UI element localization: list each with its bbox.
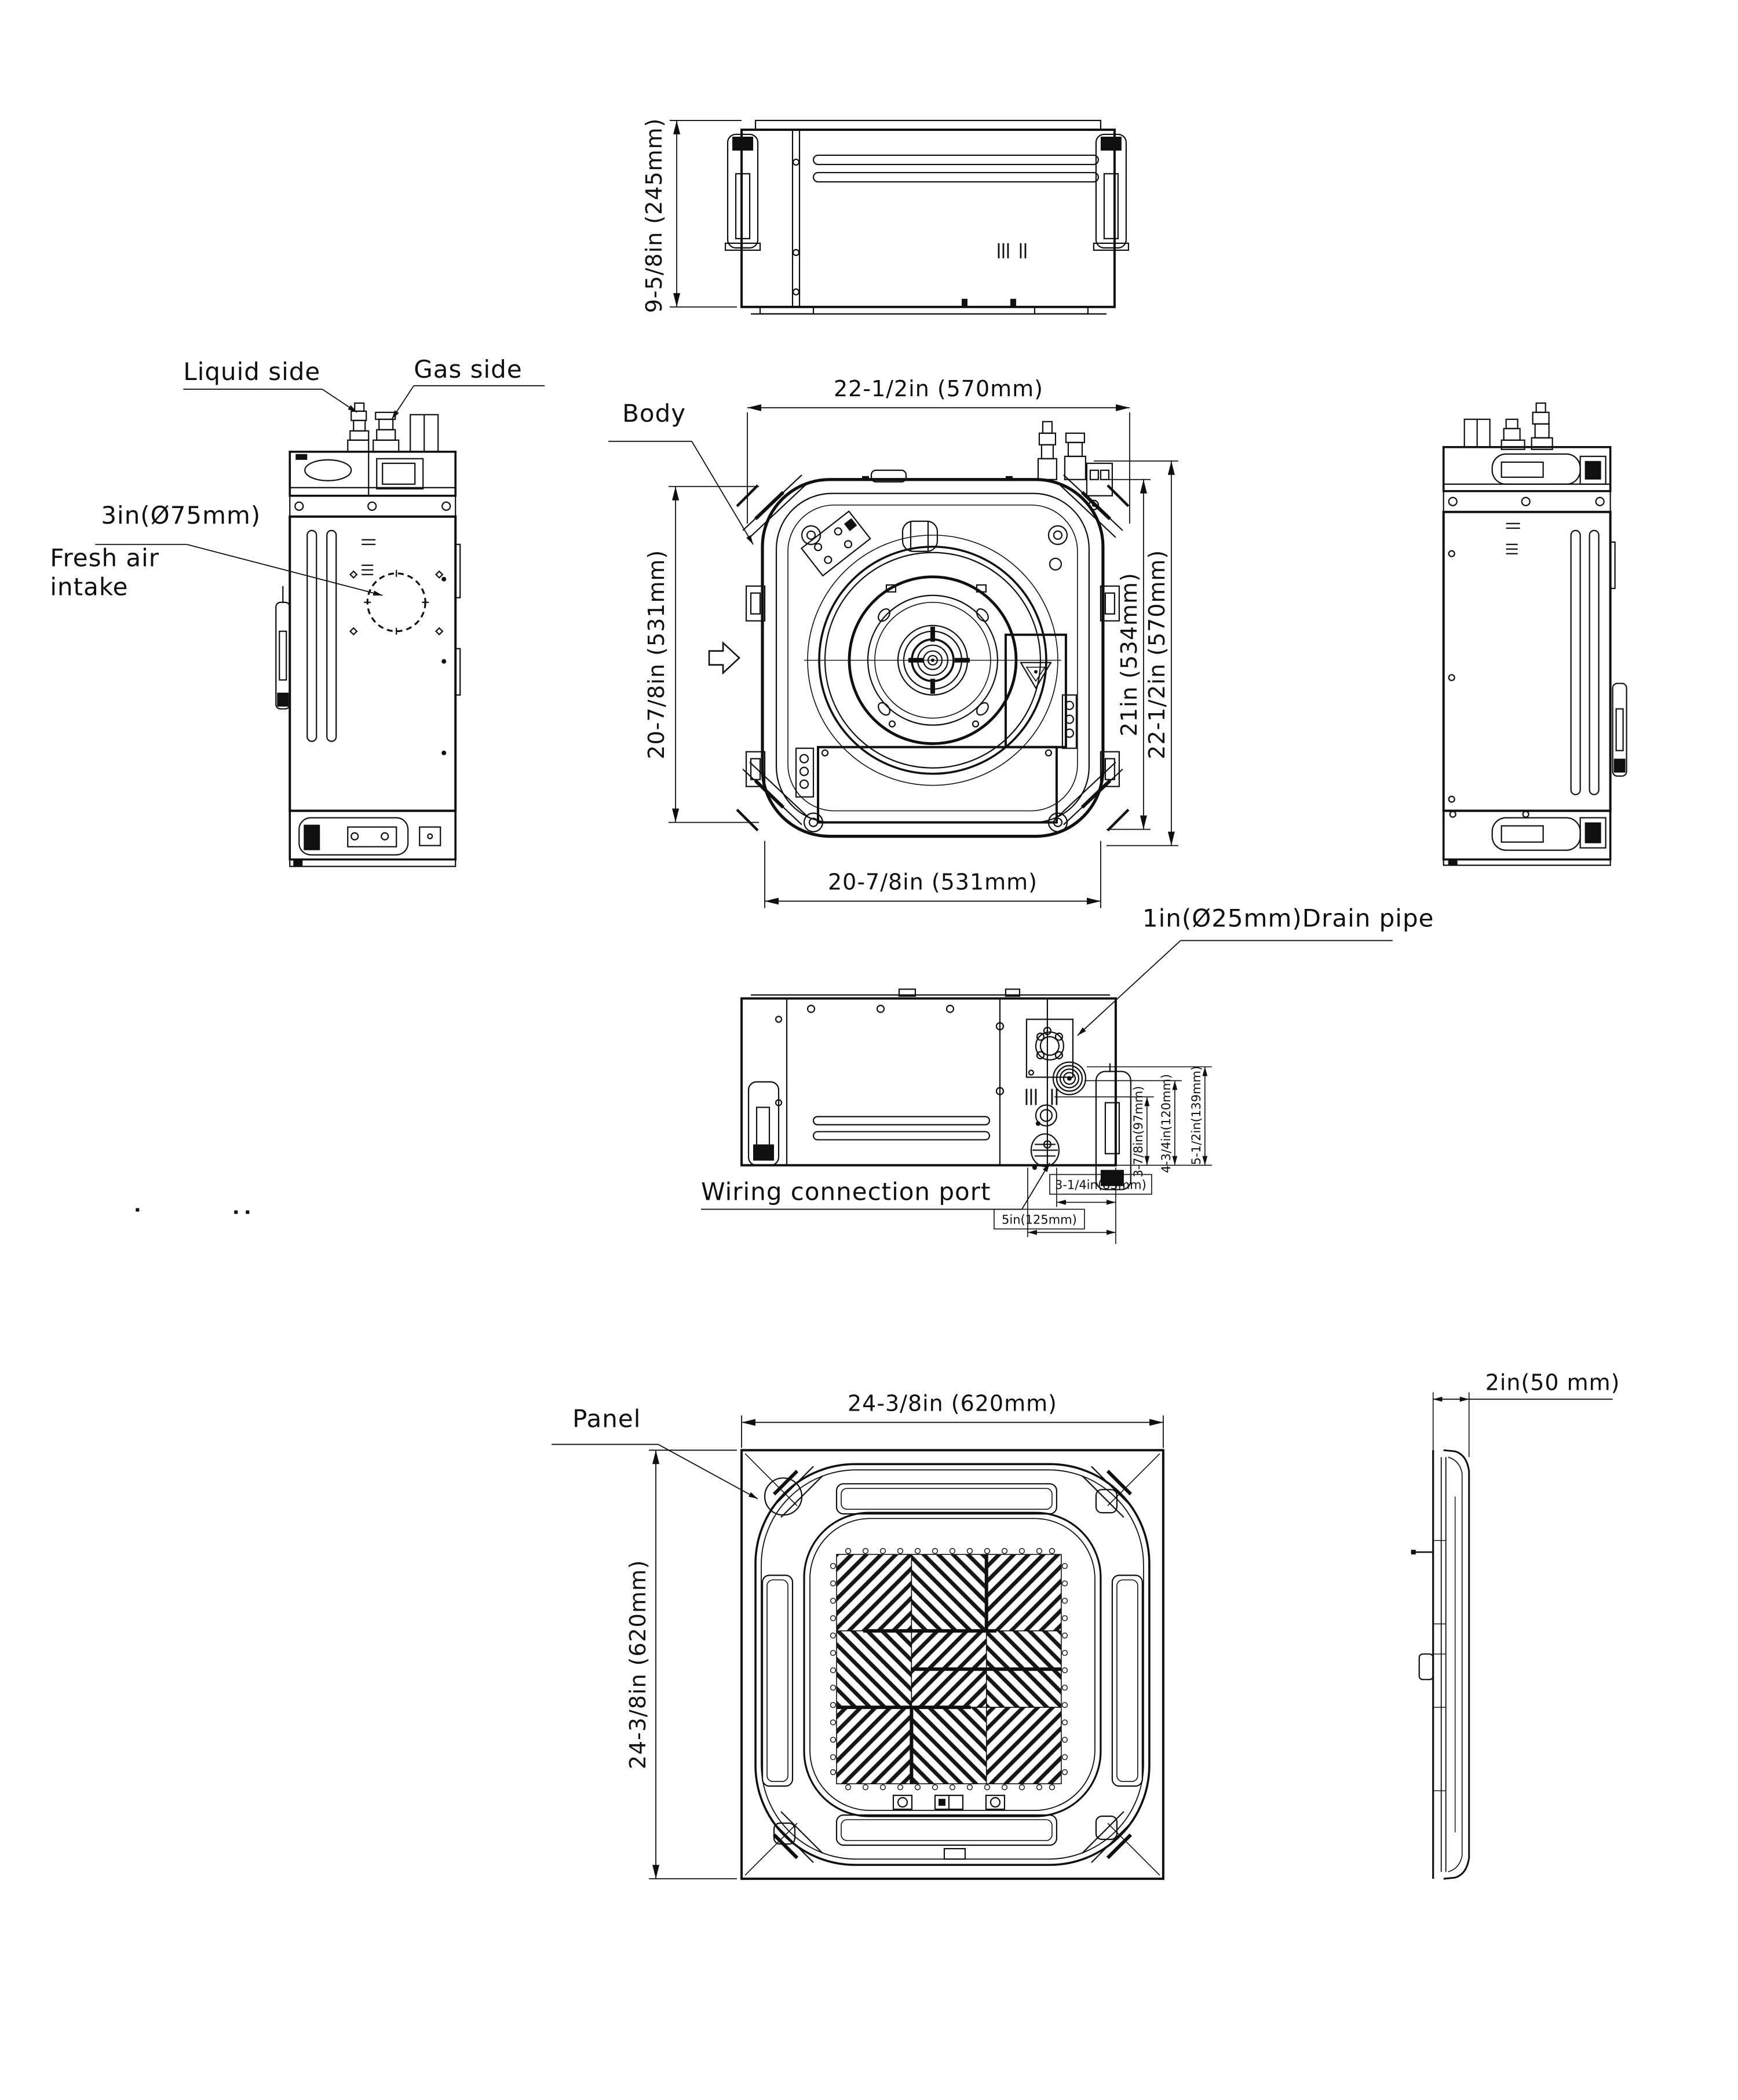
- dim-left-620: 24-3/8in (620mm): [625, 1560, 651, 1769]
- grommet-hole: [1036, 1105, 1057, 1126]
- dim-125mm: 5in(125mm): [1002, 1212, 1077, 1226]
- gas-valve: [373, 412, 399, 452]
- panel-side-view: 2in(50 mm): [1411, 1369, 1620, 1879]
- dim-right-534: 21in (534mm): [1116, 572, 1142, 736]
- dim-139mm: 5-1/2in(139mm): [1189, 1066, 1203, 1165]
- terminal-block-right: [1062, 695, 1076, 748]
- dim-top-620: 24-3/8in (620mm): [848, 1390, 1057, 1416]
- intake-diameter-label: 3in(Ø75mm): [101, 501, 261, 529]
- panel-plan-view: Panel 24-3/8in (620mm) 24-3/8in (620mm): [552, 1390, 1163, 1879]
- fresh-air-knockout: [350, 570, 443, 635]
- mount-band: [1444, 491, 1611, 512]
- dim-top: [742, 1415, 1163, 1448]
- dim-top-570: 22-1/2in (570mm): [834, 376, 1043, 401]
- vent-marks: [999, 243, 1025, 258]
- drain-pipe-leader: [1078, 941, 1393, 1036]
- dim-83mm: 3-1/4in(83mm): [1055, 1178, 1147, 1192]
- panel-sensors: [893, 1795, 1005, 1809]
- body-plan-view: 22-1/2in (570mm) 20-7/8in (531mm) 21in (…: [608, 376, 1178, 908]
- dim-height-245: 9-5/8in (245mm): [641, 118, 667, 313]
- terminal-block-left: [796, 748, 813, 797]
- dim-right-570: 22-1/2in (570mm): [1144, 550, 1170, 759]
- liquid-side-leader: [183, 389, 357, 412]
- dim-left-531: 20-7/8in (531mm): [644, 550, 669, 759]
- hanger-bracket-left: [748, 1082, 779, 1165]
- bottom-band: [1444, 811, 1611, 865]
- airflow-arrow-icon: [709, 643, 739, 673]
- dim-thickness-50: 2in(50 mm): [1485, 1369, 1620, 1395]
- panel-label: Panel: [572, 1404, 641, 1433]
- vent-marks: [1027, 1089, 1057, 1105]
- height-dimension: [670, 120, 742, 307]
- hanger-bracket-right: [1094, 134, 1129, 250]
- bottom-band: [290, 811, 455, 867]
- terminal-bracket-slanted: [801, 512, 870, 576]
- dim-left: [649, 1450, 737, 1879]
- dim-97mm: 3-7/8in(97mm): [1131, 1086, 1145, 1178]
- top-chamber: [290, 452, 455, 496]
- wiring-port-label: Wiring connection port: [701, 1177, 991, 1206]
- side-hanger-bracket: [1613, 684, 1627, 776]
- dim-thickness: [1433, 1392, 1613, 1457]
- top-chamber: [1444, 447, 1611, 491]
- side-hanger-bracket: [276, 586, 290, 709]
- bottom-elevation-view: 3-7/8in(97mm) 4-3/4in(120mm) 5-1/2in(139…: [701, 904, 1434, 1244]
- body-label: Body: [622, 399, 686, 428]
- body-leader: [608, 441, 753, 545]
- refrigerant-valves-top: [1038, 422, 1112, 510]
- fresh-air-intake-label-line1: Fresh air: [50, 544, 159, 572]
- mount-band: [290, 496, 455, 517]
- duct-stub: [410, 415, 438, 452]
- left-side-view: Liquid side Gas side 3in(Ø75mm) Fresh ai…: [50, 355, 545, 867]
- fresh-air-intake-label-line2: intake: [50, 573, 128, 601]
- liquid-valve: [348, 403, 368, 452]
- panel-leader: [552, 1444, 758, 1499]
- intake-grille: [837, 1554, 1061, 1784]
- dim-top: [747, 408, 1130, 524]
- emboss-marks: [362, 540, 375, 575]
- drawing-sheet: 9-5/8in (245mm): [0, 0, 1738, 2100]
- drain-pipe-label: 1in(Ø25mm)Drain pipe: [1142, 904, 1434, 933]
- liquid-side-label: Liquid side: [183, 357, 320, 386]
- emboss-marks: [1506, 524, 1520, 554]
- dim-120mm: 4-3/4in(120mm): [1159, 1074, 1173, 1173]
- gas-side-label: Gas side: [414, 355, 522, 384]
- right-side-view: [1444, 403, 1627, 865]
- pipe-stubs: [1465, 403, 1553, 450]
- print-artifacts: [136, 1208, 249, 1214]
- hanger-bracket-right: [1096, 1063, 1131, 1189]
- dim-bottom-531: 20-7/8in (531mm): [828, 870, 1038, 895]
- cassette-unit-dimensional-drawing: 9-5/8in (245mm): [0, 0, 1738, 2100]
- top-elevation-view: 9-5/8in (245mm): [641, 118, 1129, 314]
- drain-pipe-outlet: [1053, 1062, 1086, 1094]
